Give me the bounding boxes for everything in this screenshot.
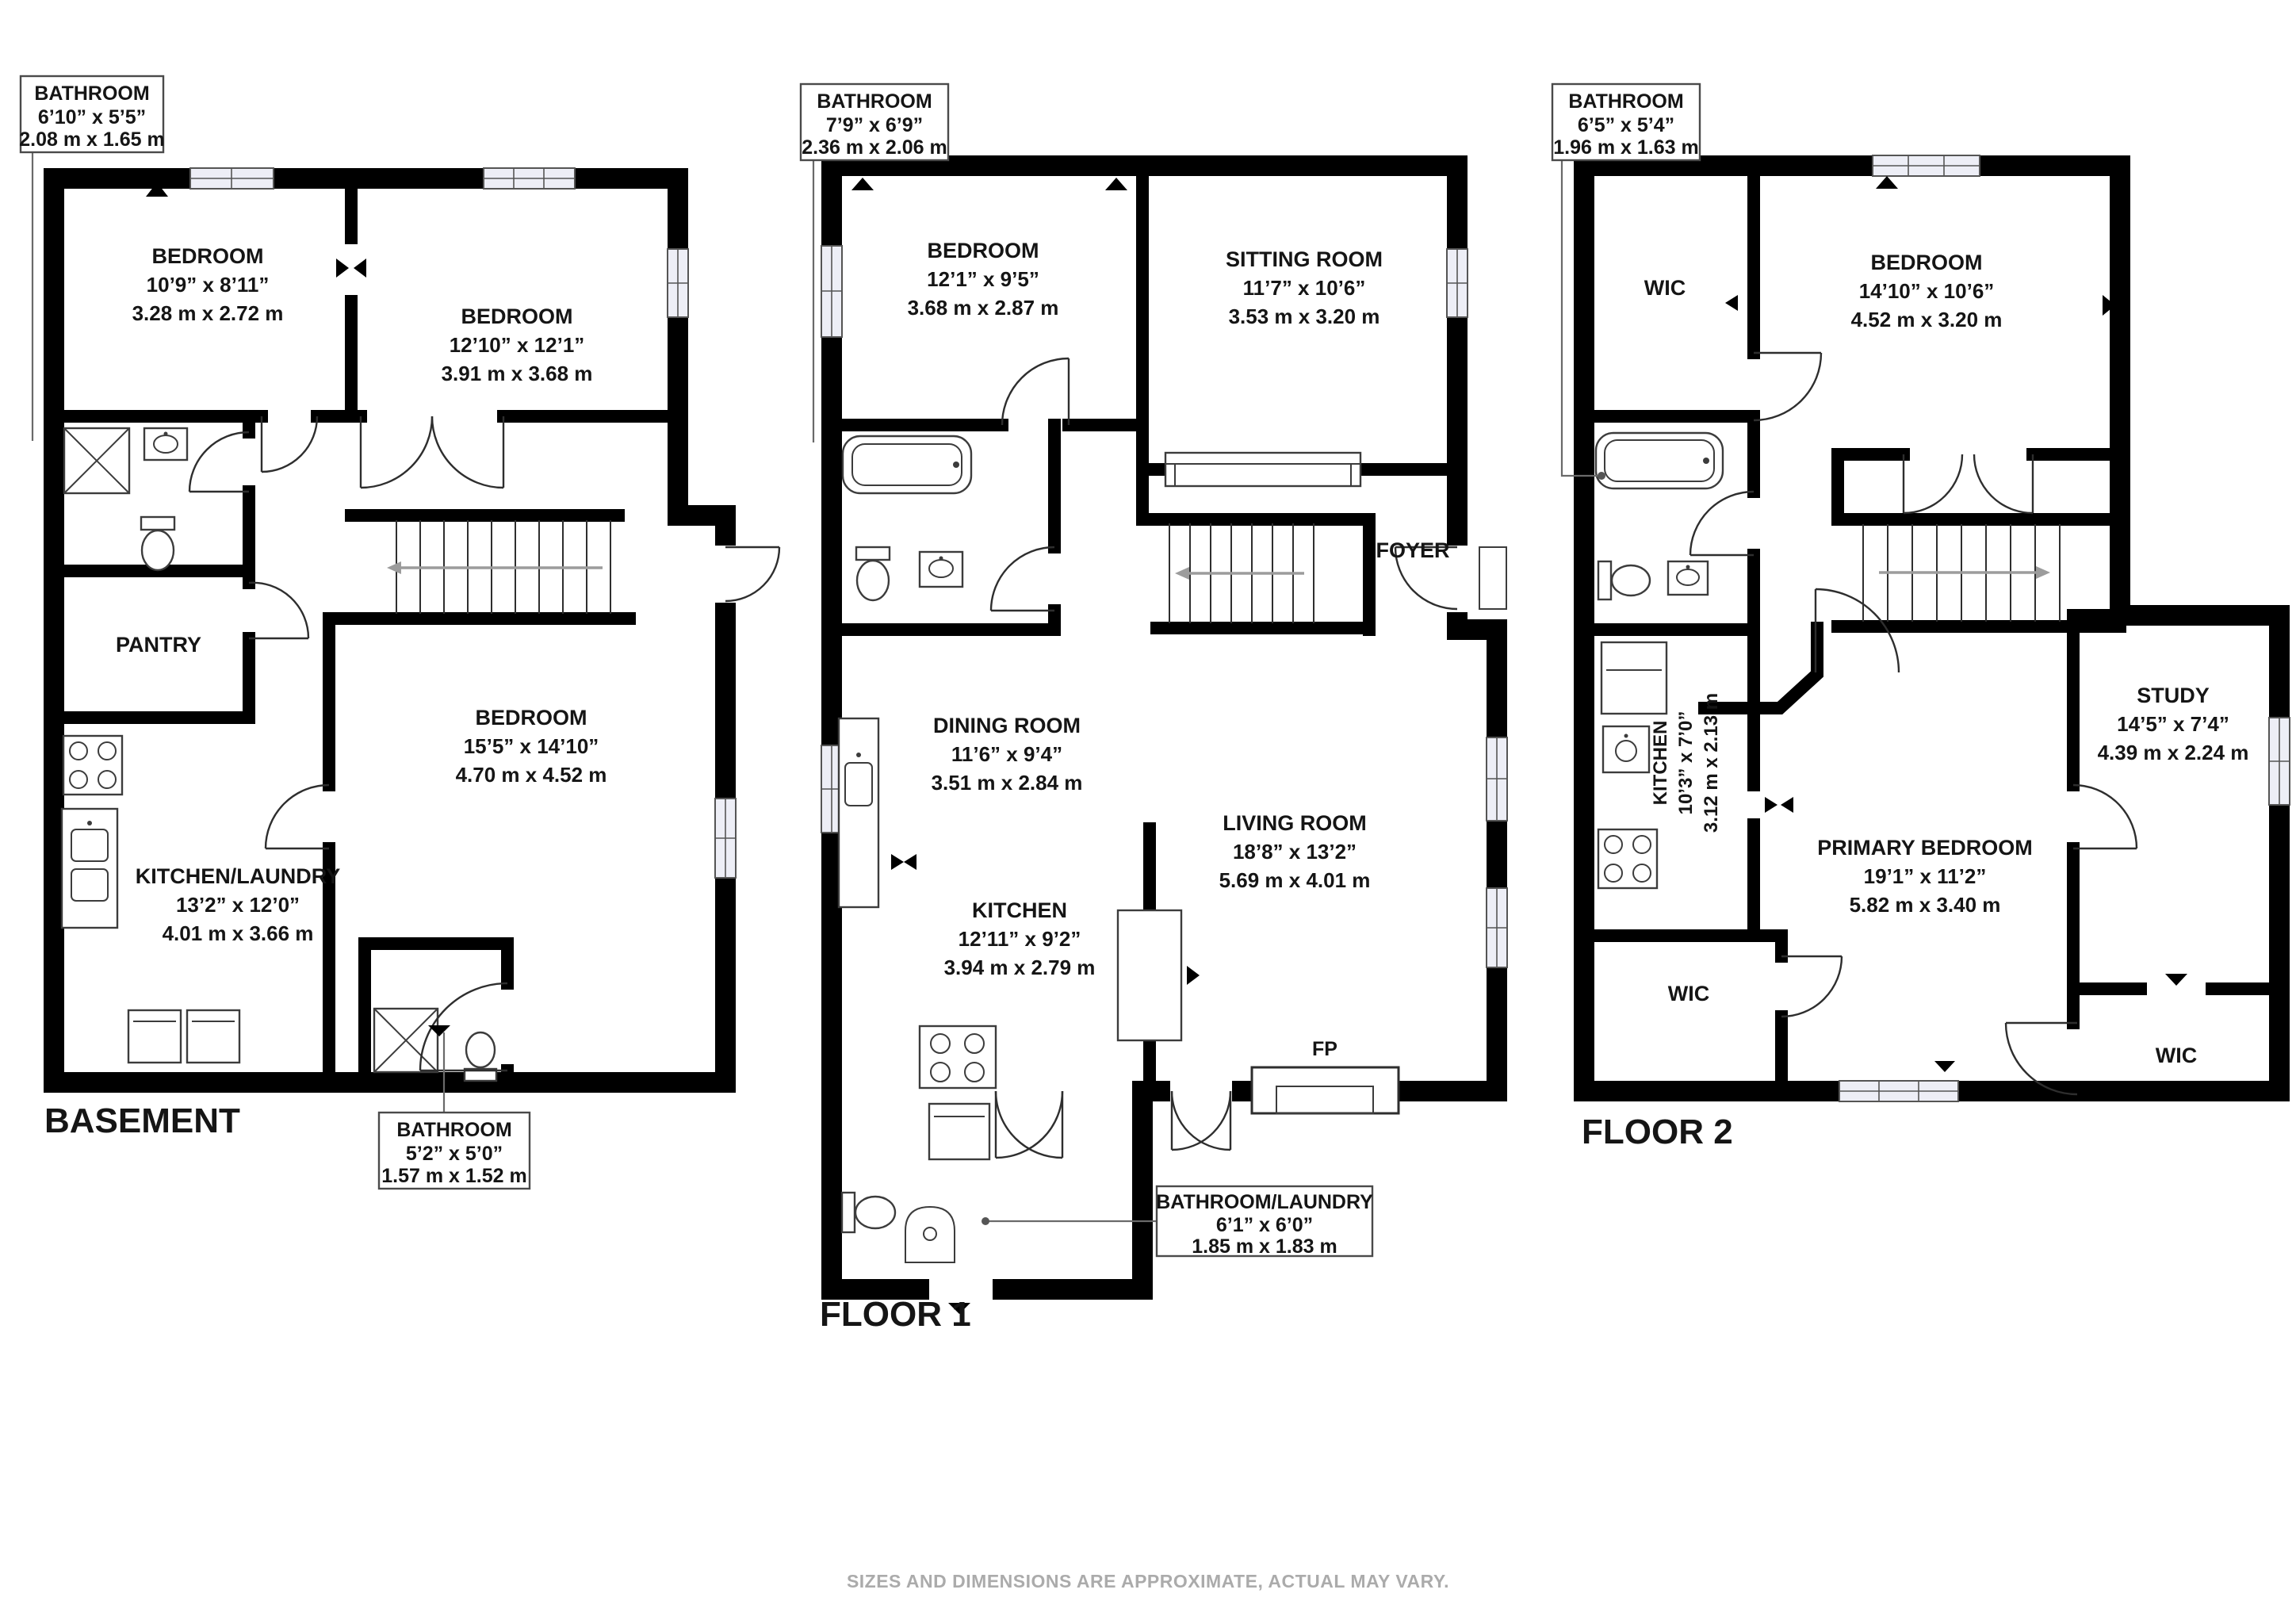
room-dimension-metric: 3.91 m x 3.68 m: [442, 362, 593, 385]
room-name-label: PANTRY: [116, 633, 201, 657]
room-dimension-imperial: 15’5” x 14’10”: [464, 734, 599, 758]
floor2-sink-icon: [1668, 561, 1708, 595]
room-dimension-metric: 4.52 m x 3.20 m: [1851, 308, 2003, 331]
floor1-kitchen-door-gap: [994, 1080, 1064, 1102]
room-dimension-metric: 5.82 m x 3.40 m: [1850, 893, 2001, 917]
floor1-sofa-icon: [1165, 453, 1360, 486]
basement-dryer-icon: [187, 1010, 239, 1063]
room-dimension-imperial: 14’10” x 10’6”: [1859, 279, 1995, 303]
room-dimension-imperial: 11’6” x 9’4”: [951, 742, 1062, 766]
room-name-label: BEDROOM: [928, 239, 1039, 262]
floor-label-basement: BASEMENT: [44, 1101, 240, 1140]
floor1-back-door-gap: [1170, 1080, 1232, 1102]
callout-metric: 2.08 m x 1.65 m: [19, 128, 164, 151]
room-name-label: WIC: [2156, 1044, 2197, 1067]
floor1-laundry-appliance-icon: [929, 1104, 989, 1159]
room-dimension-metric: 3.28 m x 2.72 m: [132, 301, 284, 325]
floor2-fridge-icon: [1601, 642, 1667, 714]
basement-toilet2-icon: [465, 1032, 496, 1081]
floor1-sink-icon: [920, 552, 962, 587]
room-name-label: BEDROOM: [1871, 251, 1983, 274]
room-name-label: WIC: [1644, 276, 1686, 300]
room-name-label: PRIMARY BEDROOM: [1817, 836, 2033, 860]
callout-metric: 1.85 m x 1.83 m: [1192, 1235, 1337, 1258]
basement-sink-icon: [144, 428, 187, 460]
room-name-label: KITCHEN/LAUNDRY: [136, 864, 341, 888]
callout-title: BATHROOM: [1568, 90, 1683, 113]
basement-washer-icon: [128, 1010, 181, 1063]
room-dimension-imperial: 12’10” x 12’1”: [450, 333, 585, 357]
leader-dot: [1598, 472, 1605, 480]
fireplace-label: FP: [1312, 1038, 1337, 1060]
floor1-toilet-icon: [856, 547, 890, 600]
room-dimension-imperial: 18’8” x 13’2”: [1233, 840, 1357, 864]
callout-title: BATHROOM/LAUNDRY: [1156, 1191, 1373, 1213]
room-dimension-metric: 3.12 m x 2.13 m: [1701, 693, 1722, 833]
basement-shower2-icon: [374, 1009, 438, 1072]
room-name-label: KITCHEN: [972, 898, 1067, 922]
room-dimension-metric: 3.53 m x 3.20 m: [1229, 304, 1380, 328]
disclaimer-text: SIZES AND DIMENSIONS ARE APPROXIMATE, AC…: [847, 1571, 1449, 1591]
floor2-stove-icon: [1598, 829, 1657, 888]
room-dimension-imperial: 11’7” x 10’6”: [1243, 276, 1366, 300]
room-name-label: BEDROOM: [476, 706, 587, 730]
room-dimension-imperial: 12’1” x 9’5”: [927, 267, 1039, 291]
room-dimension-imperial: 10’3” x 7’0”: [1675, 711, 1697, 815]
room-dimension-metric: 4.70 m x 4.52 m: [456, 763, 607, 787]
room-name-label: STUDY: [2137, 684, 2210, 707]
callout-imperial: 6’10” x 5’5”: [38, 106, 146, 128]
room-dimension-metric: 5.69 m x 4.01 m: [1219, 868, 1371, 892]
callout-imperial: 6’1” x 6’0”: [1216, 1214, 1313, 1236]
room-dimension-metric: 3.68 m x 2.87 m: [908, 296, 1059, 320]
floor-label-floor2: FLOOR 2: [1582, 1113, 1733, 1151]
room-dimension-metric: 4.01 m x 3.66 m: [163, 921, 314, 945]
room-name-label: KITCHEN: [1650, 721, 1671, 806]
floor1-bathtub-icon: [843, 436, 971, 493]
floor2-plan: WIC BEDROOM 14’10” x 10’6” 4.52 m x 3.20…: [1552, 84, 2290, 1151]
floor1-porch-step: [1479, 547, 1506, 609]
room-name-label: BEDROOM: [461, 304, 573, 328]
room-dimension-imperial: 19’1” x 11’2”: [1864, 864, 1987, 888]
room-name-label: LIVING ROOM: [1223, 811, 1367, 835]
callout-imperial: 5’2” x 5’0”: [406, 1143, 503, 1165]
floor1-peninsula-counter: [1118, 910, 1181, 1040]
callout-metric: 2.36 m x 2.06 m: [802, 136, 947, 159]
basement-shower-icon: [64, 428, 129, 493]
room-dimension-metric: 3.51 m x 2.84 m: [932, 771, 1083, 795]
room-dimension-metric: 4.39 m x 2.24 m: [2098, 741, 2249, 764]
floor-label-floor1: FLOOR 1: [820, 1295, 971, 1334]
room-dimension-imperial: 14’5” x 7’4”: [2117, 712, 2229, 736]
floor2-kitchen-sink-icon: [1603, 726, 1649, 772]
leader-dot: [982, 1217, 989, 1225]
callout-title: BATHROOM: [396, 1119, 511, 1141]
callout-title: BATHROOM: [817, 90, 932, 113]
callout-metric: 1.96 m x 1.63 m: [1553, 136, 1698, 159]
floor1-stove-icon: [920, 1026, 996, 1088]
room-name-label: FOYER: [1376, 538, 1449, 562]
room-dimension-imperial: 13’2” x 12’0”: [176, 893, 300, 917]
floor1-plan: BEDROOM 12’1” x 9’5” 3.68 m x 2.87 m SIT…: [801, 84, 1507, 1334]
floorplan-canvas: BEDROOM 10’9” x 8’11” 3.28 m x 2.72 m BE…: [0, 0, 2296, 1624]
callout-title: BATHROOM: [34, 82, 149, 105]
callout-imperial: 7’9” x 6’9”: [826, 114, 923, 136]
basement-toilet-icon: [141, 517, 174, 570]
floor1-counter-sink-icon: [839, 718, 878, 907]
basement-plan: BEDROOM 10’9” x 8’11” 3.28 m x 2.72 m BE…: [19, 76, 779, 1189]
room-name-label: BEDROOM: [152, 244, 264, 268]
callout-imperial: 6’5” x 5’4”: [1578, 114, 1674, 136]
floor1-fireplace-icon: [1252, 1067, 1399, 1113]
room-name-label: DINING ROOM: [933, 714, 1081, 737]
room-name-label: SITTING ROOM: [1226, 247, 1383, 271]
basement-counter-sink-icon: [62, 809, 117, 928]
room-dimension-metric: 3.94 m x 2.79 m: [944, 956, 1096, 979]
basement-door-gap: [714, 546, 737, 603]
floorplan-page: BEDROOM 10’9” x 8’11” 3.28 m x 2.72 m BE…: [0, 0, 2296, 1624]
room-dimension-imperial: 10’9” x 8’11”: [147, 273, 270, 297]
basement-stove-icon: [63, 736, 122, 795]
floor2-bathtub-icon: [1596, 433, 1723, 488]
room-dimension-imperial: 12’11” x 9’2”: [959, 927, 1081, 951]
callout-metric: 1.57 m x 1.52 m: [381, 1165, 526, 1187]
room-name-label: WIC: [1668, 982, 1709, 1005]
